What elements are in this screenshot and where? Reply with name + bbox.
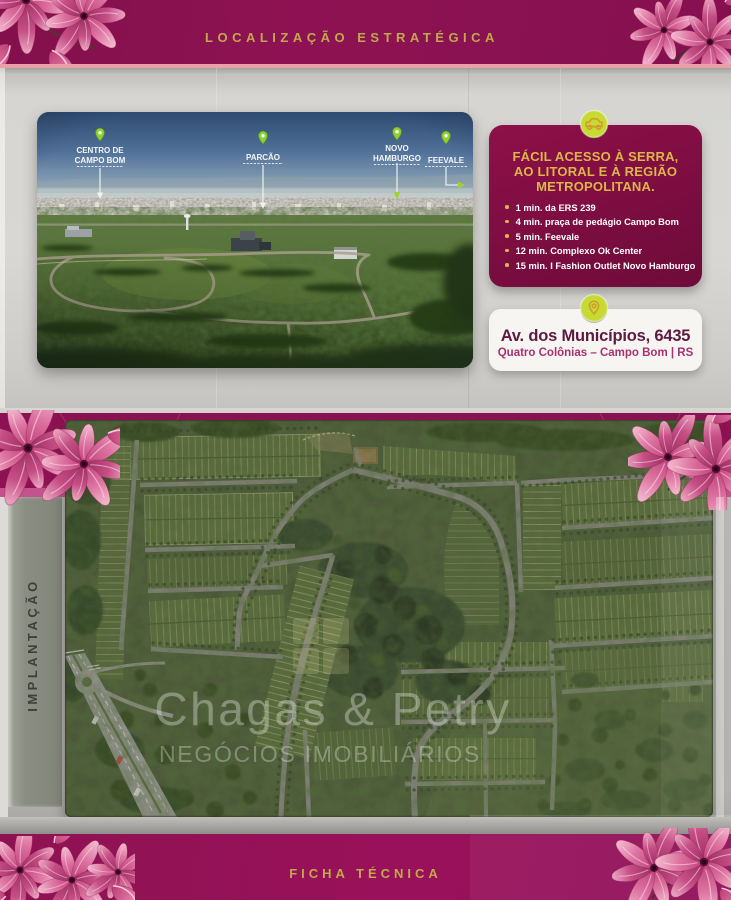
svg-text:NOVO: NOVO [385, 144, 409, 153]
svg-text:PARCÃO: PARCÃO [246, 153, 280, 162]
svg-text:Chagas & Petry: Chagas & Petry [154, 683, 511, 735]
svg-text:CAMPO BOM: CAMPO BOM [75, 156, 126, 165]
svg-text:NEGÓCIOS IMOBILIÁRIOS: NEGÓCIOS IMOBILIÁRIOS [159, 741, 481, 767]
svg-text:FEEVALE: FEEVALE [428, 156, 465, 165]
svg-text:HAMBURGO: HAMBURGO [373, 154, 421, 163]
svg-text:CENTRO DE: CENTRO DE [76, 146, 124, 155]
